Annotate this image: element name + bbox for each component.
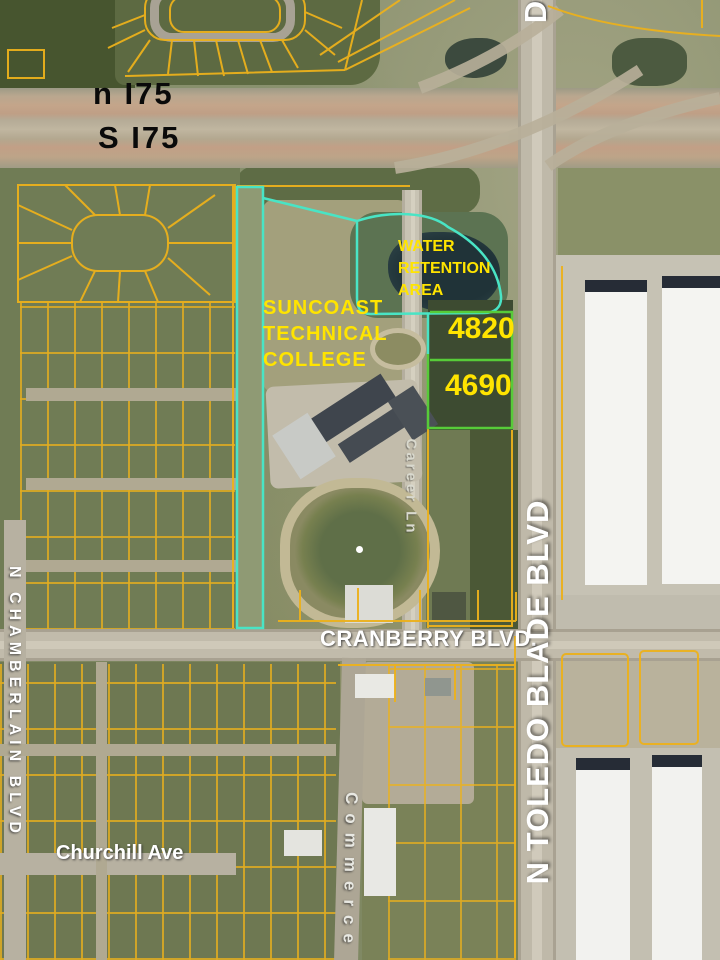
strip-parcel-outline [237, 187, 263, 628]
chamberlain-blvd-label: N CHAMBERLAIN BLVD [5, 566, 23, 838]
toledo-blade-blvd-label: N TOLEDO BLADE BLVD [520, 500, 556, 885]
parcel-4690-label: 4690 [445, 369, 512, 404]
i75-north-label: n I75 [93, 76, 174, 112]
toledo-blade-partial-label: D [518, 1, 554, 23]
college-label: SUNCOAST TECHNICAL COLLEGE [263, 295, 388, 373]
parcel-4820-label: 4820 [448, 312, 515, 347]
campus-top-outline [263, 198, 357, 221]
cranberry-blvd-label: CRANBERRY BLVD. [320, 626, 537, 651]
i75-south-label: S I75 [98, 120, 180, 156]
ramp-roads [395, 10, 720, 168]
water-retention-label: WATER RETENTION AREA [398, 236, 490, 302]
commerce-label: Commerce [339, 792, 361, 952]
churchill-ave-label: Churchill Ave [56, 842, 183, 865]
aerial-parcel-map: n I75 S I75 WATER RETENTION AREA SUNCOAS… [0, 0, 720, 960]
career-ln-label: Career Ln [402, 438, 419, 535]
